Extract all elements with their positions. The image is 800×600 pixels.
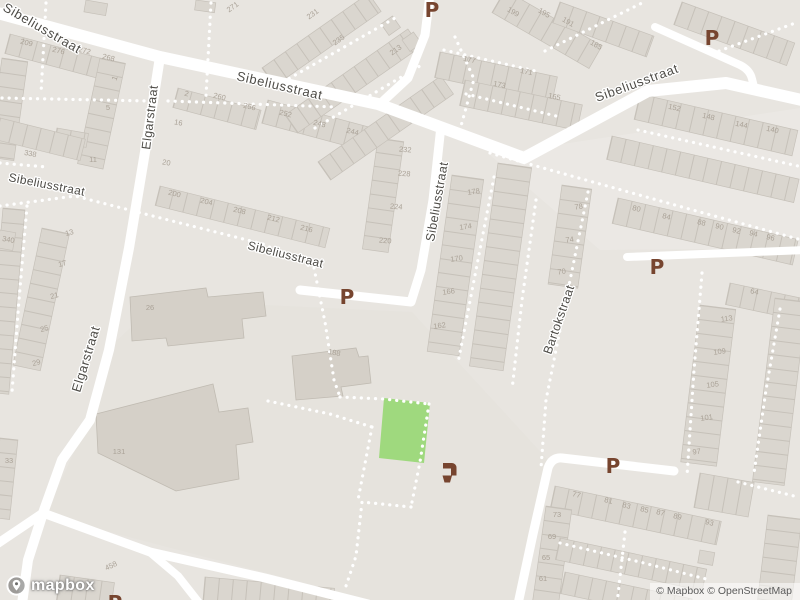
map-attribution[interactable]: © Mapbox © OpenStreetMap [650,583,800,600]
mapbox-logo[interactable]: mapbox [6,575,95,596]
house-number: 65 [542,553,550,562]
house-number: 78 [574,201,584,211]
building-row [0,438,18,519]
street-label: Bartokstraat [541,283,578,356]
house-number: 26 [146,303,154,312]
house-number: 13 [64,227,74,238]
house-number: 20 [162,157,172,167]
house-number: 21 [49,290,59,301]
building-row [195,0,216,13]
house-number: 170 [450,253,464,264]
house-number: 33 [5,456,13,465]
house-number: 69 [548,532,556,541]
house-number: 458 [103,559,118,572]
house-number: 338 [23,148,37,159]
street-label: Sibeliusstraat [7,170,86,199]
house-number: 73 [553,510,561,519]
house-number: 174 [459,221,473,232]
house-number: 220 [379,235,392,245]
house-number: 101 [700,412,714,423]
house-number: 178 [467,186,481,197]
parking-icon: P [425,0,440,22]
house-number: 232 [399,144,412,154]
house-number: 97 [692,446,702,456]
house-number: 228 [398,168,411,178]
house-number: 231 [305,7,320,22]
building-row [84,0,108,16]
parking-icon: P [340,285,355,309]
house-number: 17 [57,258,67,269]
mapbox-logo-text: mapbox [31,577,95,595]
house-number: 61 [539,574,547,583]
house-number: 113 [720,313,733,324]
mapbox-logo-icon [6,575,27,596]
house-number: 224 [390,201,403,211]
building-row [752,298,800,486]
parking-icon: P [606,454,621,478]
building-row [694,473,754,517]
house-number: 109 [713,346,727,357]
house-number: 166 [442,286,456,297]
footpath [0,163,47,167]
building-row [381,16,400,35]
house-number: 74 [565,234,575,244]
house-number: 11 [89,155,97,164]
parking-icon: P [650,255,665,279]
footpath [2,98,150,101]
building-row [674,2,795,66]
house-number: 16 [174,117,184,127]
house-number: 162 [433,320,447,331]
street-label: Elgarstraat [139,84,161,150]
map-canvas[interactable]: 2092762722681511338226025616202002042082… [0,0,800,600]
parking-icon: P [705,26,720,50]
building-row [698,550,715,565]
house-number: 70 [557,266,567,276]
house-number: 5 [106,103,110,112]
map-tiles: 2092762722681511338226025616202002042082… [0,0,800,600]
house-number: 271 [225,0,240,14]
house-number: 105 [706,379,720,390]
footpath [206,3,211,96]
parking-icon: P [108,591,123,600]
house-number: 131 [113,447,126,456]
